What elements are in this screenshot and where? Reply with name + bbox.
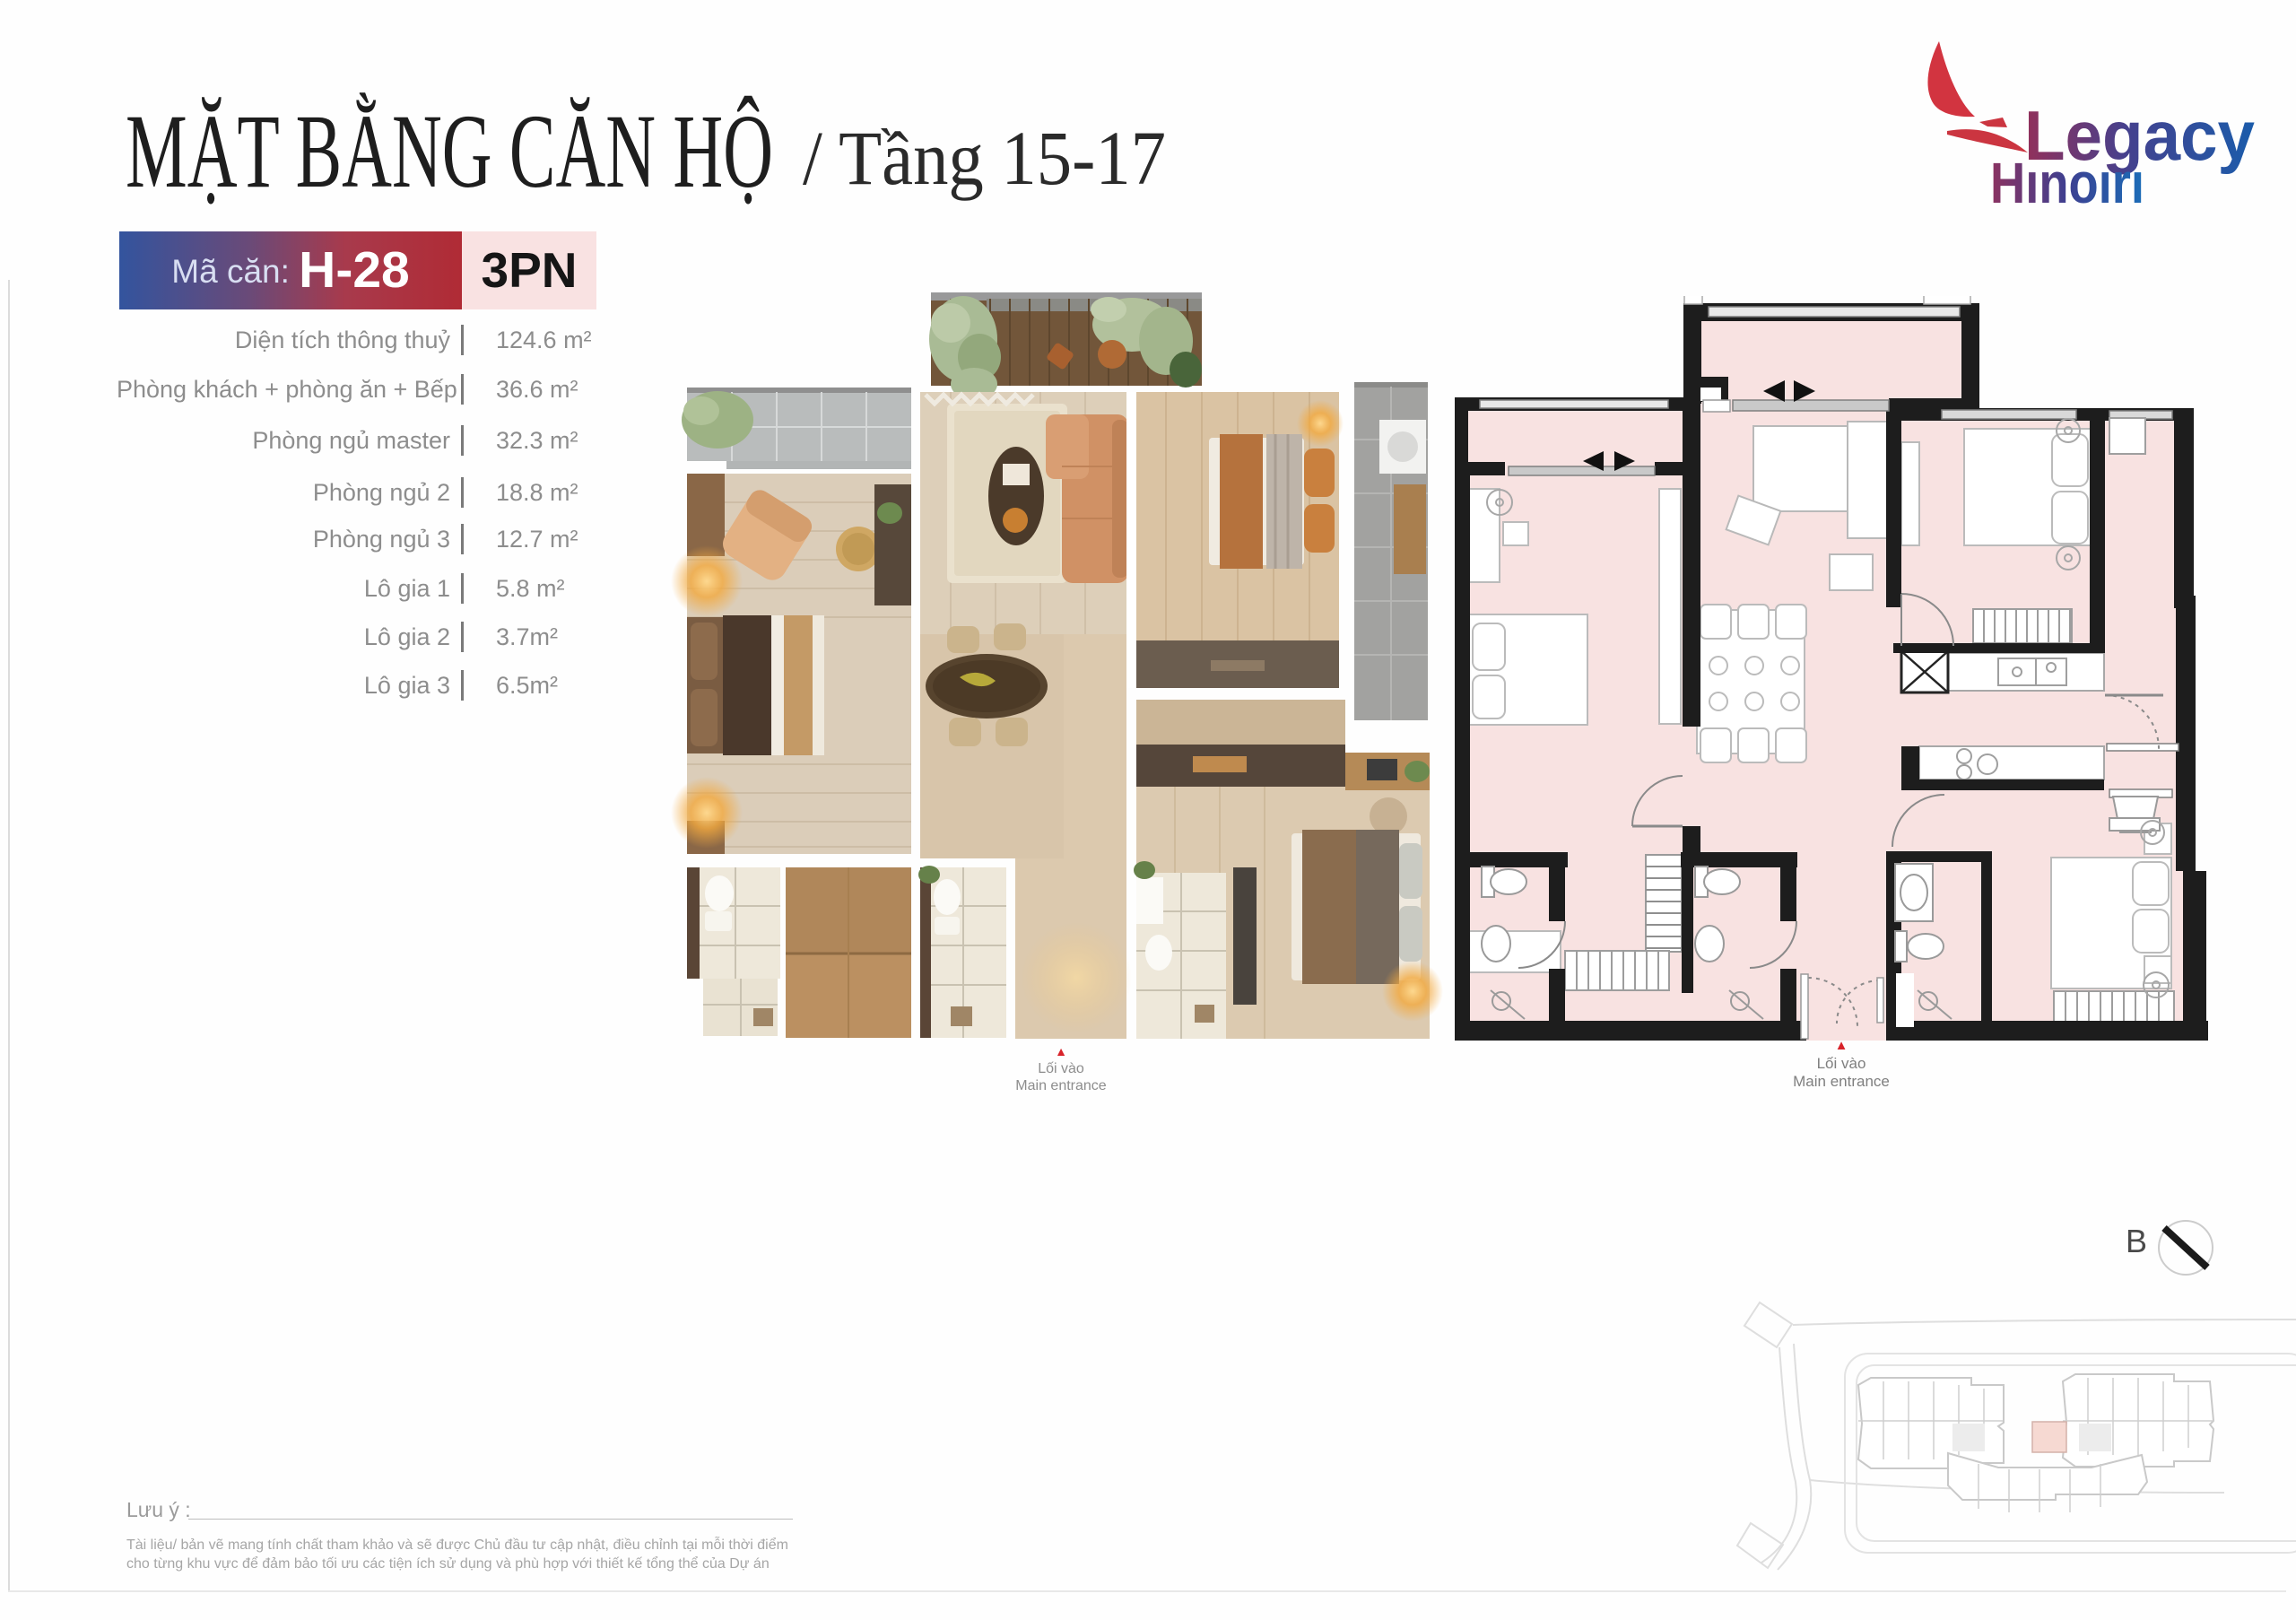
svg-text:/ Tầng 15-17: / Tầng 15-17 <box>803 115 1166 201</box>
svg-text:Hınoırı: Hınoırı <box>1990 151 2144 215</box>
svg-text:MẶT BẰNG CĂN HỘ: MẶT BẰNG CĂN HỘ <box>126 91 773 210</box>
svg-text:B: B <box>2126 1223 2147 1259</box>
